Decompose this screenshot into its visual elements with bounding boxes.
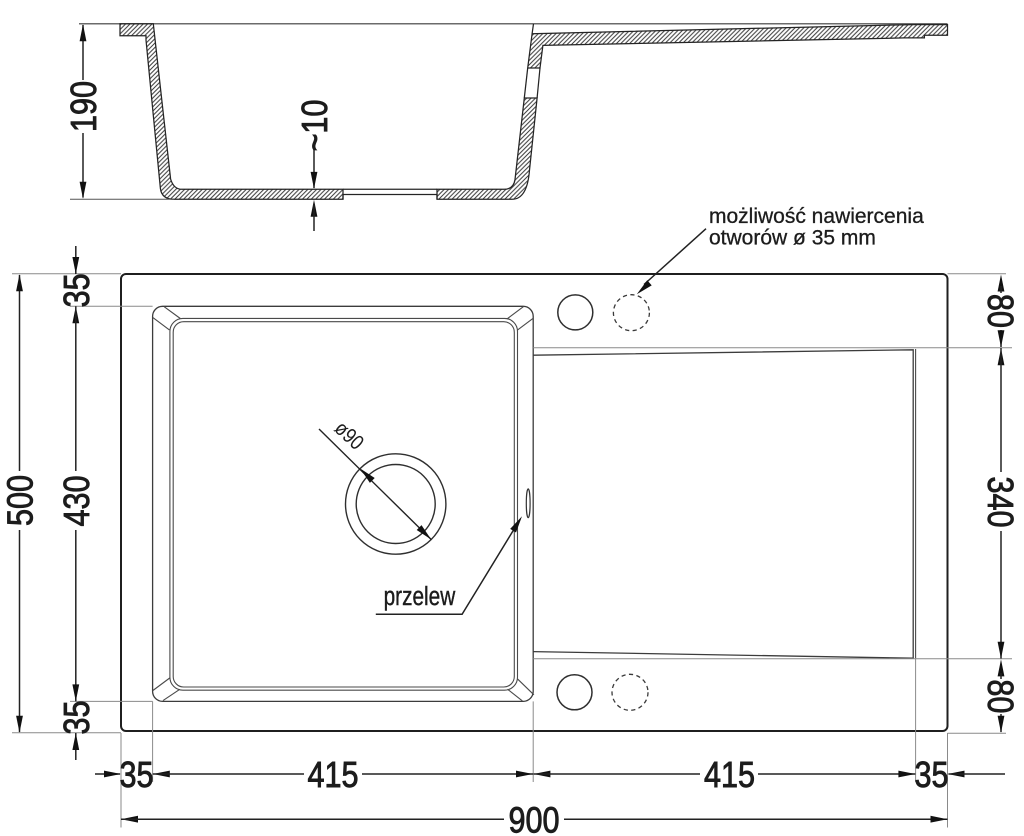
svg-text:35: 35 [119, 756, 153, 796]
svg-text:80: 80 [979, 679, 1019, 713]
svg-text:340: 340 [979, 476, 1019, 527]
svg-text:~10: ~10 [296, 100, 336, 152]
svg-text:80: 80 [979, 294, 1019, 328]
svg-text:900: 900 [508, 801, 559, 836]
svg-text:35: 35 [58, 700, 98, 734]
svg-text:190: 190 [65, 81, 105, 132]
svg-text:415: 415 [704, 756, 755, 796]
svg-text:430: 430 [58, 475, 98, 526]
svg-text:otworów ø 35 mm: otworów ø 35 mm [709, 226, 876, 249]
svg-text:możliwość nawiercenia: możliwość nawiercenia [709, 205, 924, 228]
svg-text:35: 35 [58, 273, 98, 307]
svg-text:415: 415 [307, 756, 358, 796]
svg-text:35: 35 [914, 756, 948, 796]
svg-text:przelew: przelew [384, 582, 457, 611]
svg-text:500: 500 [1, 475, 41, 526]
svg-text:ø90: ø90 [330, 417, 369, 455]
